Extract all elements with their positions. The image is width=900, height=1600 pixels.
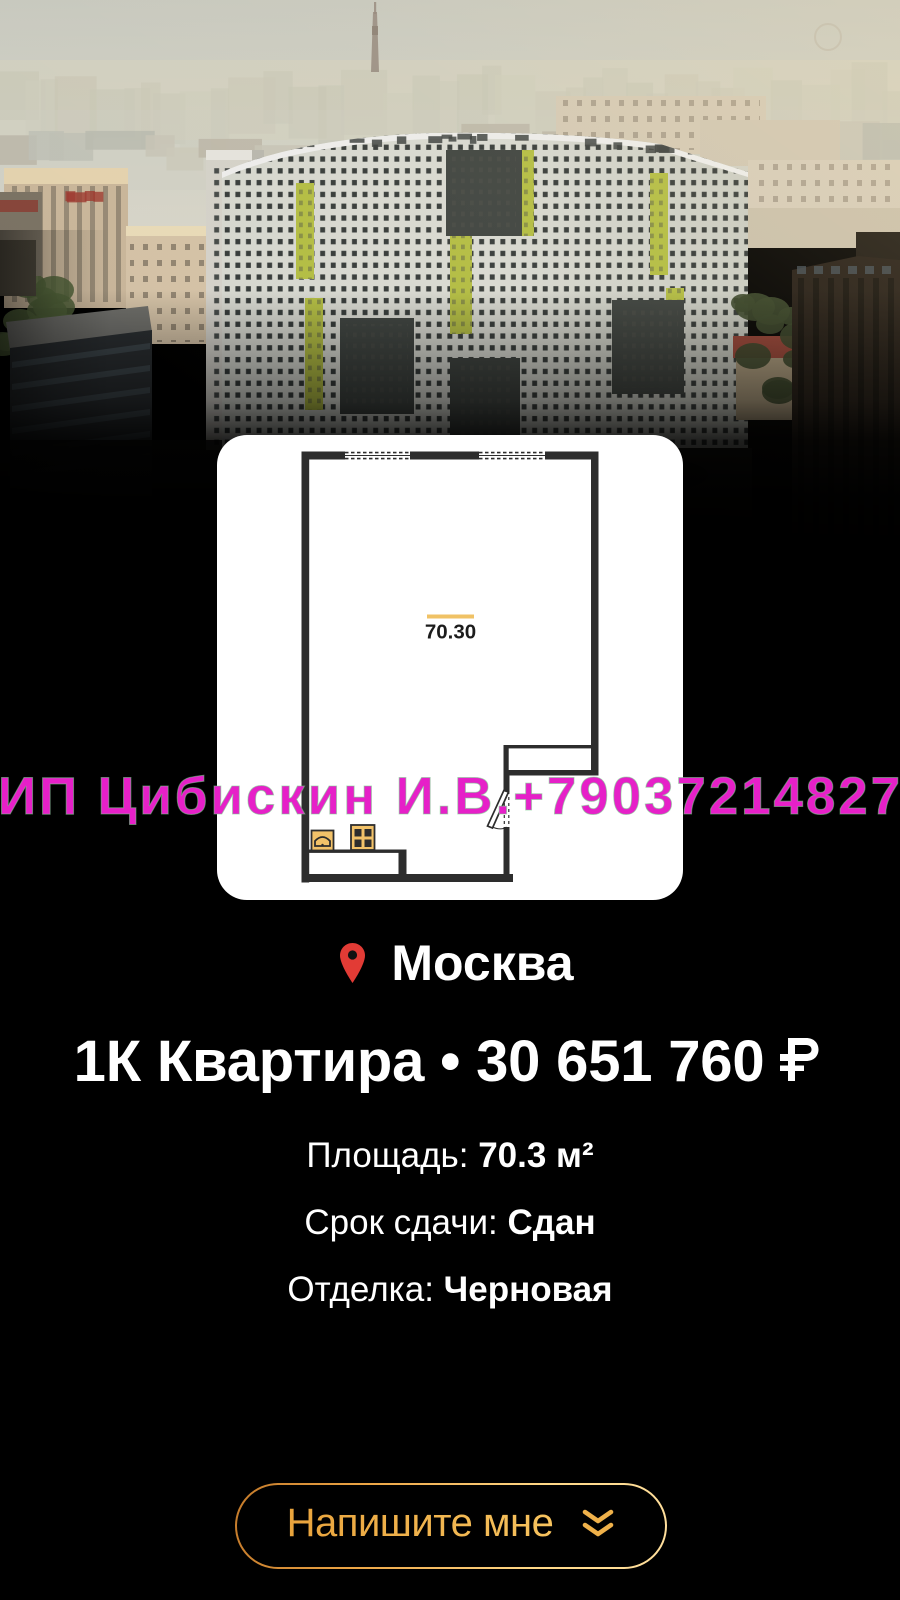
svg-text:70.30: 70.30 <box>425 621 476 644</box>
